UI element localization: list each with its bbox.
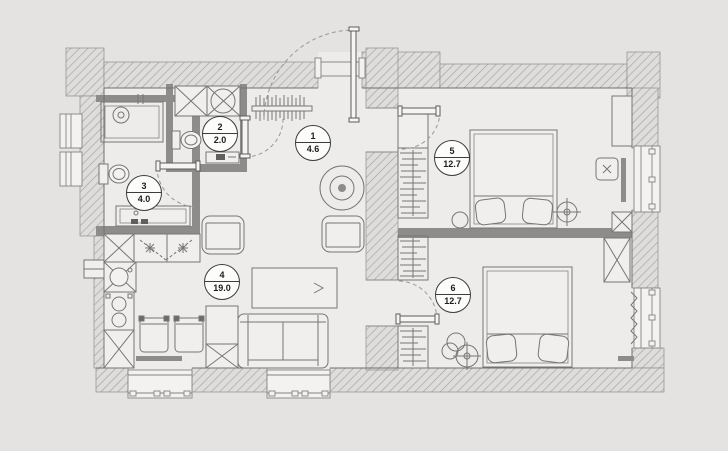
bed bbox=[483, 267, 572, 367]
wardrobe-closed bbox=[604, 238, 630, 282]
window-bottom-right bbox=[267, 370, 330, 398]
room-area: 2.0 bbox=[203, 134, 237, 151]
room-number: 3 bbox=[127, 176, 161, 192]
bedroom6-door-leaf bbox=[396, 314, 439, 324]
corner-cabinet bbox=[612, 212, 632, 232]
window-left-lower bbox=[60, 152, 82, 186]
armchair bbox=[202, 216, 244, 254]
room-label-5: 5 12.7 bbox=[434, 140, 470, 176]
pillow bbox=[475, 197, 507, 225]
dining-chair bbox=[174, 316, 204, 352]
room-number: 2 bbox=[203, 117, 237, 133]
window-sill-strip-left bbox=[136, 356, 182, 361]
tall-cabinet bbox=[206, 306, 238, 368]
pillow bbox=[537, 333, 569, 363]
boiler-unit bbox=[207, 86, 240, 116]
wall-pier bbox=[612, 96, 632, 146]
window-bottom-left bbox=[128, 370, 192, 398]
sofa bbox=[238, 314, 328, 368]
floor-plan-drawing bbox=[0, 0, 728, 451]
floor-plan: 1 4.6 2 2.0 3 4.0 4 19.0 5 12.7 6 12.7 bbox=[0, 0, 728, 451]
room-area: 4.6 bbox=[296, 143, 330, 160]
kitchen-sink bbox=[104, 262, 136, 292]
bathroom-door-leaf bbox=[156, 161, 200, 171]
room-label-1: 1 4.6 bbox=[295, 125, 331, 161]
pillow bbox=[522, 198, 553, 226]
washing-machine bbox=[175, 86, 207, 116]
room-label-4: 4 19.0 bbox=[204, 264, 240, 300]
table bbox=[252, 268, 337, 308]
window-right-bedroom6 bbox=[634, 288, 660, 348]
armchair bbox=[322, 216, 364, 252]
room-label-2: 2 2.0 bbox=[202, 116, 238, 152]
toilet bbox=[99, 164, 129, 184]
room-number: 1 bbox=[296, 126, 330, 142]
bed bbox=[470, 130, 557, 228]
floor-vent bbox=[618, 356, 634, 361]
room-area: 4.0 bbox=[127, 193, 161, 210]
room-label-3: 3 4.0 bbox=[126, 175, 162, 211]
window-left-upper bbox=[60, 114, 82, 148]
wc-door-leaf bbox=[240, 116, 250, 158]
curtain-bar bbox=[621, 158, 626, 202]
room-number: 5 bbox=[435, 141, 469, 157]
room-number: 6 bbox=[436, 278, 470, 294]
dining-chair bbox=[139, 316, 169, 352]
bedroom5-door-leaf bbox=[398, 106, 440, 116]
room-number: 4 bbox=[205, 265, 239, 281]
nightstand bbox=[596, 158, 618, 180]
room-area: 19.0 bbox=[205, 282, 239, 299]
room-area: 12.7 bbox=[435, 158, 469, 175]
pillow bbox=[486, 334, 518, 364]
toilet bbox=[172, 131, 201, 149]
small-sink bbox=[206, 152, 239, 163]
window-right-bedroom5 bbox=[634, 146, 660, 212]
kitchen-stove bbox=[104, 292, 134, 330]
room-area: 12.7 bbox=[436, 295, 470, 312]
room-label-6: 6 12.7 bbox=[435, 277, 471, 313]
